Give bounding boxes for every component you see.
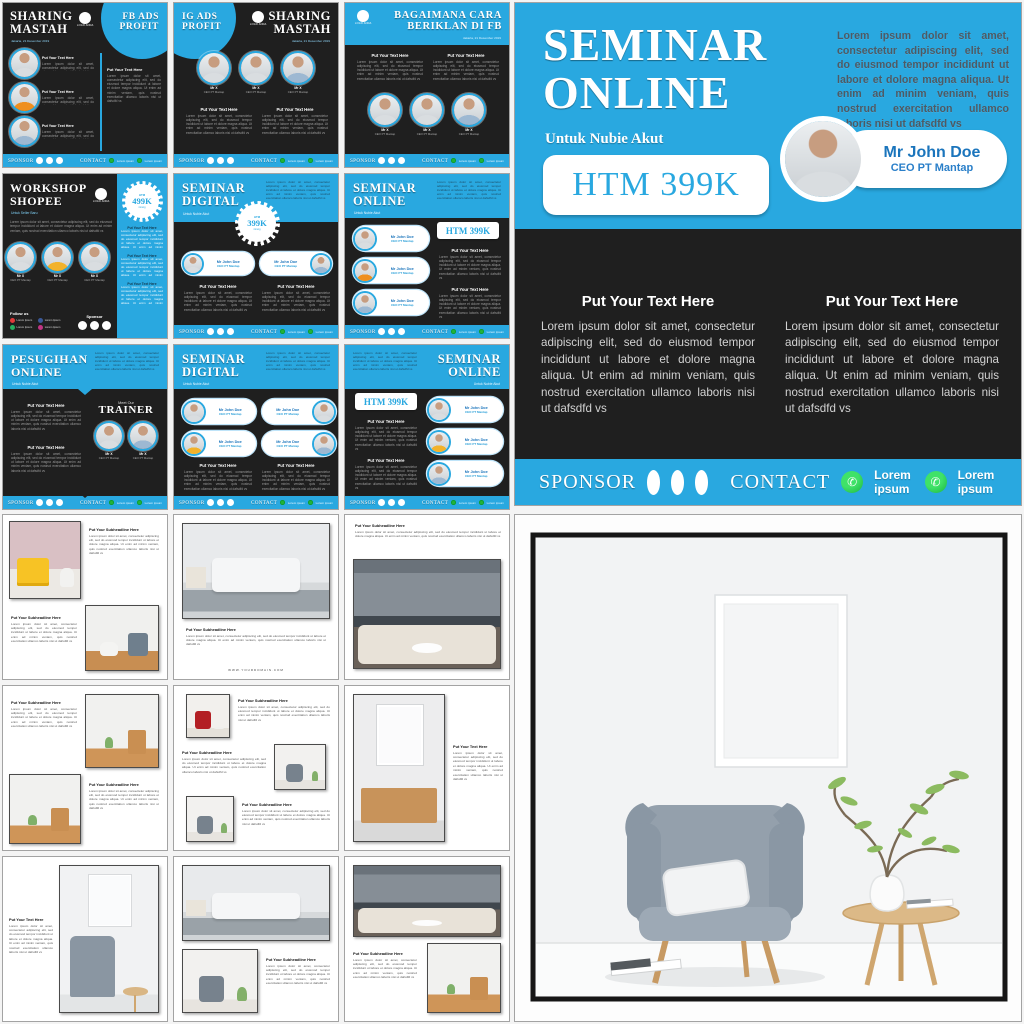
lorem-paragraph: Lorem ipsum dolor sit amet, consectetur … xyxy=(439,255,501,281)
speaker-role: CEO PT Mantap xyxy=(96,456,122,460)
text-heading: Put Your Text Here xyxy=(186,107,252,112)
speaker-pill: Mr John Doe CEO PT Mantap xyxy=(353,290,429,315)
speaker: Mr X CEO PT Mantap xyxy=(412,95,442,136)
speaker-text: Mr John Doe CEO PT Mantap xyxy=(264,408,312,416)
subheadline: Put Your Subheadline Here xyxy=(186,627,326,632)
text-block: Put Your Text Here Lorem ipsum dolor sit… xyxy=(121,226,163,248)
social-handle: Lorem Ipsum xyxy=(45,326,61,329)
lorem-paragraph: Lorem ipsum dolor sit amet, consectetur … xyxy=(184,470,252,496)
speaker-avatar xyxy=(785,121,861,197)
speaker-row: Mr X CEO PT Mantap Mr X CEO PT Mantap Mr… xyxy=(174,53,338,94)
subheadline: Put Your Subheadline Here xyxy=(238,698,330,703)
speaker-role: CEO PT Mantap xyxy=(44,278,71,282)
lorem-paragraph: Lorem ipsum dolor sit amet, consectetur … xyxy=(785,319,999,418)
text-block: Put Your Text Here Lorem ipsum dolor sit… xyxy=(9,917,53,968)
brochure-thumb-1: Put Your Subheadline Here Lorem ipsum do… xyxy=(2,514,168,680)
lorem-paragraph: Lorem ipsum dolor sit amet, consectetur … xyxy=(121,258,163,276)
contact-label: CONTACT xyxy=(80,158,106,164)
speaker-pill: Mr John Doe CEO PT Mantap xyxy=(182,252,254,275)
speaker: Mr X CEO PT Mantap xyxy=(199,53,229,94)
date-text: Jakarta, 21 Desember 2019 xyxy=(11,39,49,43)
social-handle: Lorem Ipsum xyxy=(17,326,33,329)
lorem-paragraph: Lorem ipsum dolor sit amet, consectetur … xyxy=(186,634,326,656)
flyer-thumb-pesugihan-online: PESUGIHAN ONLINE Untuk Nubie Akut Lorem … xyxy=(2,344,168,510)
brochure-thumb-7: Put Your Text Here Lorem ipsum dolor sit… xyxy=(2,856,168,1022)
sponsor-dot xyxy=(388,499,395,506)
text-block: Put Your Text Here Lorem ipsum dolor sit… xyxy=(439,287,501,320)
speaker-role: CEO PT Mantap xyxy=(81,278,108,282)
contact-text: Lorem ipsum xyxy=(288,330,305,334)
logo-caption: LOGO ANDA xyxy=(77,24,94,27)
contact-text: Lorem ipsum xyxy=(316,501,333,505)
contact-label: CONTACT xyxy=(730,471,830,494)
sponsor-contact-bar: SPONSOR CONTACT Lorem ipsum Lorem ipsum xyxy=(174,496,338,509)
sponsor-label: SPONSOR xyxy=(179,158,204,164)
price-value: 399K xyxy=(247,219,267,228)
sidebar-text-blocks: Put Your Text Here Lorem ipsum dolor sit… xyxy=(121,226,163,304)
photo-gray-chair xyxy=(182,949,258,1013)
speaker-text: Put Your Text Here Lorem ipsum dolor sit… xyxy=(42,124,94,139)
sponsor-dot xyxy=(671,470,684,495)
brochure-thumb-8: Put Your Subheadline Here Lorem ipsum do… xyxy=(173,856,339,1022)
text-heading: Put Your Text Here xyxy=(541,293,755,310)
flyer-title: BAGAIMANA CARA BERIKLAN DI FB xyxy=(394,10,502,32)
speaker: Mr X CEO PT Mantap xyxy=(130,423,156,460)
whatsapp-icon xyxy=(479,500,484,505)
whatsapp-icon xyxy=(479,329,484,334)
speaker-role: CEO PT Mantap xyxy=(454,132,484,136)
speaker-role: CEO PT Mantap xyxy=(274,264,297,268)
subtitle: Untuk Nubie Akut xyxy=(183,212,209,216)
flyer-thumb-workshop-shopee: WORKSHOP SHOPEE Untuk Seller Baru LOGO A… xyxy=(2,173,168,339)
sponsor-contact-bar: SPONSOR CONTACT ✆ Lorem ipsum ✆ Lorem ip… xyxy=(515,459,1021,505)
facebook-icon xyxy=(38,318,43,323)
sponsor-label: Sponsor xyxy=(78,314,111,319)
trainer-row: Mr X CEO PT Mantap Mr X CEO PT Mantap xyxy=(91,423,161,460)
sponsor-label: SPONSOR xyxy=(8,158,33,164)
sponsor-dot xyxy=(207,499,214,506)
lorem-paragraph: Lorem ipsum dolor sit amet, consectetur … xyxy=(238,705,330,727)
sponsor-dot xyxy=(46,499,53,506)
text-block: Put Your Subheadline Here Lorem ipsum do… xyxy=(186,627,326,656)
logo-caption: LOGO ANDA xyxy=(250,23,267,26)
trainer-title: TRAINER xyxy=(91,405,161,417)
photo-dark-livingroom xyxy=(353,865,501,937)
lorem-paragraph: Lorem ipsum dolor sit amet, consectetur … xyxy=(266,181,330,203)
sponsor-label: SPONSOR xyxy=(8,500,33,506)
title-line: MASTAH xyxy=(10,23,73,36)
whatsapp-icon xyxy=(451,500,456,505)
speaker-avatar xyxy=(355,229,375,249)
flyer-thumb-seminar-online-2: Lorem ipsum dolor sit amet, consectetur … xyxy=(344,344,510,510)
title-line: WORKSHOP xyxy=(10,182,87,195)
lorem-paragraph: Lorem ipsum dolor sit amet, consectetur … xyxy=(11,707,77,755)
price-value: 499K xyxy=(132,197,152,206)
speaker-avatar xyxy=(130,423,156,449)
text-block: Put Your Subheadline Here Lorem ipsum do… xyxy=(11,700,77,755)
corner-badge-label: IG ADS PROFIT xyxy=(182,12,222,32)
sponsor-dots xyxy=(78,321,111,330)
template-collage: SHARING MASTAH Jakarta, 21 Desember 2019… xyxy=(0,0,1024,1024)
speaker-avatar xyxy=(11,118,38,145)
lorem-paragraph: Lorem ipsum dolor sit amet, consectetur … xyxy=(266,964,330,1008)
text-block: Put Your Text Here Lorem ipsum dolor sit… xyxy=(357,53,423,92)
text-block: Put Your Subheadline Here Lorem ipsum do… xyxy=(11,615,77,670)
speaker-pill: Mr John Doe CEO PT Mantap xyxy=(427,429,503,454)
brochure-thumb-5: Put Your Subheadline Here Lorem ipsum do… xyxy=(173,685,339,851)
sponsor-dot xyxy=(217,157,224,164)
speaker-pill: Mr John Doe CEO PT Mantap xyxy=(260,252,332,275)
speaker-name: Mr John Doe xyxy=(884,144,981,162)
text-heading: Put Your Text Here xyxy=(355,419,417,424)
speaker-pill: Mr John Doe CEO PT Mantap xyxy=(427,397,503,422)
side-text-block: Put Your Text Here Lorem ipsum dolor sit… xyxy=(107,67,161,126)
photo-wooden-chair xyxy=(85,694,159,768)
text-block: Put Your Text Here Lorem ipsum dolor sit… xyxy=(184,284,252,321)
contact-text: Lorem ipsum xyxy=(117,501,134,505)
speaker: Mr X CEO PT Mantap xyxy=(454,95,484,136)
contact-text: Lorem ipsum xyxy=(487,501,504,505)
text-block: Put Your Text Here Lorem ipsum dolor sit… xyxy=(186,107,252,150)
contact-label: CONTACT xyxy=(422,500,448,506)
lorem-paragraph: Lorem ipsum dolor sit amet, consectetur … xyxy=(266,352,330,374)
text-section-right: Put Your Text Here Lorem ipsum dolor sit… xyxy=(785,293,999,418)
sponsor-contact-bar: SPONSOR CONTACT Lorem ipsum Lorem ipsum xyxy=(345,496,509,509)
lorem-paragraph: Lorem ipsum dolor sit amet, consectetur … xyxy=(95,352,159,374)
text-heading: Put Your Text Here xyxy=(439,287,501,292)
whatsapp-icon xyxy=(280,158,285,163)
text-block: Put Your Text Here Lorem ipsum dolor sit… xyxy=(184,463,252,496)
flyer-title: SHARING MASTAH xyxy=(10,10,73,37)
speaker-role: CEO PT Mantap xyxy=(241,90,271,94)
lorem-paragraph: Lorem ipsum dolor sit amet, consectetur … xyxy=(11,410,81,440)
sponsor-label: SPONSOR xyxy=(179,500,204,506)
speaker-pill: Mr John Doe CEO PT Mantap xyxy=(353,226,429,251)
sponsor-contact-bar: SPONSOR CONTACT Lorem ipsum Lorem ipsum xyxy=(3,154,167,167)
logo-circle xyxy=(357,10,369,22)
social-row: Lorem Ipsum xyxy=(38,325,60,330)
contact-label: CONTACT xyxy=(422,158,448,164)
text-heading: Put Your Text Here xyxy=(184,463,252,468)
speaker-avatar xyxy=(184,255,202,273)
title-line: ONLINE xyxy=(438,366,501,379)
photo-desk-frame xyxy=(353,694,445,842)
follow-us-label: Follow us xyxy=(10,311,60,316)
contact-text: Lorem ipsum xyxy=(487,330,504,334)
flyer-title: WORKSHOP SHOPEE xyxy=(10,182,87,207)
sponsor-contact-bar: SPONSOR CONTACT Lorem ipsum Lorem ipsum xyxy=(174,154,338,167)
sponsor-dot xyxy=(90,321,99,330)
speaker-avatar xyxy=(199,53,229,83)
sponsor-dot xyxy=(388,328,395,335)
whatsapp-icon xyxy=(10,325,15,330)
speaker-text: Mr John Doe CEO PT Mantap xyxy=(262,260,310,268)
contact-text: Lorem ipsum xyxy=(145,501,162,505)
speaker-role: CEO PT Mantap xyxy=(891,162,974,174)
sponsor-dot xyxy=(217,499,224,506)
flyer-title: PESUGIHAN ONLINE xyxy=(11,353,88,378)
speaker-pill: Mr John Doe CEO PT Mantap xyxy=(182,431,256,456)
price-box: HTM 399K xyxy=(355,393,417,410)
text-heading: Put Your Text Here xyxy=(107,67,161,72)
lorem-paragraph: Lorem ipsum dolor sit amet, consectetur … xyxy=(186,114,252,150)
photo-gray-chair xyxy=(274,744,326,790)
photo-side-table xyxy=(123,987,148,996)
speaker-avatar xyxy=(314,434,334,454)
website-url: WWW.YOURDOMAIN.COM xyxy=(174,668,338,672)
lorem-paragraph: Lorem ipsum dolor sit amet, consectetur … xyxy=(121,230,163,248)
flyer-thumb-beriklan-fb: LOGO ANDA BAGAIMANA CARA BERIKLAN DI FB … xyxy=(344,2,510,168)
text-section-left: Put Your Text Here Lorem ipsum dolor sit… xyxy=(541,293,755,418)
subtitle: Untuk Nubie Akut xyxy=(474,382,500,386)
text-block: Put Your Subheadline Here Lorem ipsum do… xyxy=(182,750,266,783)
subtitle: Untuk Nubie Akut xyxy=(545,131,663,148)
flyer-title: SEMINAR ONLINE xyxy=(543,21,767,118)
lorem-paragraph: Lorem ipsum dolor sit amet, consectetur … xyxy=(453,751,503,795)
speaker-pill: Mr John Doe CEO PT Mantap xyxy=(182,399,256,424)
sponsor-dot xyxy=(378,157,385,164)
speaker-role: CEO PT Mantap xyxy=(283,90,313,94)
subheadline: Put Your Subheadline Here xyxy=(242,802,330,807)
speaker-avatar xyxy=(184,434,204,454)
speaker-role: CEO PT Mantap xyxy=(412,132,442,136)
title-line: SEMINAR xyxy=(543,21,767,69)
logo-placeholder: LOGO ANDA xyxy=(355,10,372,25)
photo-gray-chair xyxy=(186,796,234,842)
subheadline: Put Your Subheadline Here xyxy=(11,615,77,620)
sponsor-dot xyxy=(378,328,385,335)
whatsapp-icon xyxy=(109,500,114,505)
speaker-avatar xyxy=(370,95,400,125)
subheadline: Put Your Text Here xyxy=(9,917,53,922)
speaker-role: CEO PT Mantap xyxy=(370,132,400,136)
flyer-title: SHARING MASTAH xyxy=(268,10,331,37)
contact-text: Lorem ipsum xyxy=(459,330,476,334)
trainer-block: Meet Our TRAINER Mr X CEO PT Mantap Mr X… xyxy=(91,401,161,460)
text-heading: Put Your Text Here xyxy=(355,458,417,463)
contact-text: Lorem ipsum xyxy=(316,330,333,334)
speaker-text: Mr John Doe CEO PT Mantap xyxy=(378,267,428,275)
text-block: Put Your Text Here Lorem ipsum dolor sit… xyxy=(355,458,417,491)
speaker-pill: Mr John Doe CEO PT Mantap xyxy=(262,431,336,456)
text-block: Put Your Text Here Lorem ipsum dolor sit… xyxy=(11,445,81,482)
title-line: SEMINAR xyxy=(438,353,501,366)
text-heading: Put Your Text Here xyxy=(11,445,81,450)
photo-red-armchair xyxy=(186,694,230,738)
text-heading: Put Your Text Here xyxy=(262,107,328,112)
lorem-paragraph: Lorem ipsum dolor sit amet, consectetur … xyxy=(121,286,163,304)
social-col: Lorem Ipsum Lorem Ipsum xyxy=(10,318,32,330)
speaker-role: CEO PT Mantap xyxy=(276,412,299,416)
lorem-paragraph: Lorem ipsum dolor sit amet, consectetur … xyxy=(182,757,266,783)
title-line: MASTAH xyxy=(268,23,331,36)
title-line: BERIKLAN DI FB xyxy=(394,21,502,32)
sponsor-label: SPONSOR xyxy=(350,158,375,164)
sponsor-dot xyxy=(378,499,385,506)
flyer-thumb-seminar-digital-4: SEMINAR DIGITAL Untuk Nubie Akut Lorem i… xyxy=(173,344,339,510)
sponsor-dot xyxy=(56,499,63,506)
subtitle: Untuk Nubie Akut xyxy=(183,382,209,386)
text-block: Put Your Subheadline Here Lorem ipsum do… xyxy=(242,802,330,835)
subtitle: Untuk Nubie Akut xyxy=(354,211,380,215)
photo-armchair-frame xyxy=(59,865,159,1013)
speaker-avatar xyxy=(355,293,375,313)
text-heading: Put Your Text Here xyxy=(357,53,423,58)
contact-text: Lorem ipsum xyxy=(487,159,504,163)
lorem-paragraph: Lorem ipsum dolor sit amet, consectetur … xyxy=(242,809,330,835)
speaker-avatar xyxy=(429,432,449,452)
text-block: Put Your Subheadline Here Lorem ipsum do… xyxy=(89,527,159,578)
speaker-role: CEO PT Mantap xyxy=(391,303,414,307)
speaker-avatar xyxy=(241,53,271,83)
subtitle: Untuk Seller Baru xyxy=(11,211,38,215)
social-row: Lorem Ipsum xyxy=(38,318,60,323)
speaker-text: Mr John Doe CEO PT Mantap xyxy=(378,235,428,243)
subheadline: Put Your Text Here xyxy=(453,744,503,749)
speaker: Mr X CEO PT Mantap xyxy=(81,244,108,282)
lorem-paragraph: Lorem ipsum dolor sit amet, consectetur … xyxy=(42,62,94,71)
speaker-text: Put Your Text Here Lorem ipsum dolor sit… xyxy=(42,56,94,71)
speaker-role: CEO PT Mantap xyxy=(465,410,488,414)
contact-text: Lorem ipsum xyxy=(145,159,162,163)
flyer-thumb-seminar-digital-2: SEMINAR DIGITAL Untuk Nubie Akut Lorem i… xyxy=(173,173,339,339)
lorem-paragraph: Lorem ipsum dolor sit amet, consectetur … xyxy=(11,452,81,482)
whatsapp-icon xyxy=(109,158,114,163)
contact-text: Lorem ipsum xyxy=(958,468,997,496)
header-notch xyxy=(78,389,92,395)
text-block: Put Your Text Here Lorem ipsum dolor sit… xyxy=(439,248,501,281)
whatsapp-icon: ✆ xyxy=(925,471,947,493)
subheadline: Put Your Subheadline Here xyxy=(89,782,159,787)
title-line: DIGITAL xyxy=(182,195,245,208)
speaker-row: Put Your Text Here Lorem ipsum dolor sit… xyxy=(11,84,94,111)
speaker-role: CEO PT Mantap xyxy=(465,474,488,478)
title-line: ONLINE xyxy=(543,69,767,117)
contact-text: Lorem ipsum xyxy=(459,501,476,505)
sponsor-dot xyxy=(398,157,405,164)
social-row: Lorem Ipsum xyxy=(10,318,32,323)
speaker-text: Mr John Doe CEO PT Mantap xyxy=(378,299,428,307)
sponsor-dot xyxy=(207,157,214,164)
text-heading: Put Your Text Here xyxy=(11,403,81,408)
sponsor-label: SPONSOR xyxy=(539,471,636,494)
big-photo-armchair-mockup xyxy=(514,514,1022,1022)
speaker-text: Mr John Doe CEO PT Mantap xyxy=(452,470,502,478)
sponsor-block: Sponsor xyxy=(78,314,111,330)
lorem-paragraph: Lorem ipsum dolor sit amet, consectetur … xyxy=(355,530,501,550)
speaker-avatar xyxy=(355,261,375,281)
subheadline: Put Your Subheadline Here xyxy=(182,750,266,755)
footer-notch xyxy=(78,492,92,498)
whatsapp-icon xyxy=(451,329,456,334)
speaker-avatar xyxy=(7,244,34,271)
speaker-avatar xyxy=(412,95,442,125)
lorem-paragraph: Lorem ipsum dolor sit amet, consectetur … xyxy=(89,534,159,578)
speaker: Mr X CEO PT Mantap xyxy=(241,53,271,94)
speaker: Mr X CEO PT Mantap xyxy=(7,244,34,282)
sponsor-dot xyxy=(695,470,708,495)
speaker-avatar xyxy=(11,84,38,111)
text-block: Put Your Text Here Lorem ipsum dolor sit… xyxy=(121,282,163,304)
speaker-role: CEO PT Mantap xyxy=(130,456,156,460)
speaker-card: Mr John Doe CEO PT Mantap xyxy=(785,121,1007,197)
whatsapp-icon xyxy=(308,329,313,334)
sponsor-dot xyxy=(207,328,214,335)
speaker-role: CEO PT Mantap xyxy=(7,278,34,282)
speaker-role: CEO PT Mantap xyxy=(391,271,414,275)
contact-label: CONTACT xyxy=(251,329,277,335)
photo-dark-livingroom xyxy=(353,559,501,669)
text-block: Put Your Subheadline Here Lorem ipsum do… xyxy=(89,782,159,837)
social-col: Lorem Ipsum Lorem Ipsum xyxy=(38,318,60,330)
lorem-paragraph: Lorem ipsum dolor sit amet, consectetur … xyxy=(89,789,159,837)
title-line: SHARING xyxy=(268,10,331,23)
lorem-paragraph: Lorem ipsum dolor sit amet, consectetur … xyxy=(433,60,499,92)
speaker-role: CEO PT Mantap xyxy=(276,444,299,448)
speaker-text: Mr John Doe CEO PT Mantap xyxy=(207,440,255,448)
sponsor-dot xyxy=(217,328,224,335)
title-line: ONLINE xyxy=(11,366,88,379)
subheadline: Put Your Subheadline Here xyxy=(11,700,77,705)
title-line: SEMINAR xyxy=(182,353,245,366)
badge-line: FB ADS xyxy=(120,12,160,22)
subheadline: Put Your Subheadline Here xyxy=(89,527,159,532)
brochure-thumb-2: Put Your Subheadline Here Lorem ipsum do… xyxy=(173,514,339,680)
brochure-thumb-3: Put Your Subheadline Here Lorem ipsum do… xyxy=(344,514,510,680)
speaker-text: Mr John Doe CEO PT Mantap xyxy=(264,440,312,448)
speaker-avatar xyxy=(184,402,204,422)
contact-text: Lorem ipsum xyxy=(117,159,134,163)
sponsor-dot xyxy=(227,499,234,506)
logo-placeholder: LOGO ANDA xyxy=(250,11,267,26)
big-flyer-seminar-online: SEMINAR ONLINE Untuk Nubie Akut Lorem ip… xyxy=(514,2,1022,506)
subheadline: Put Your Subheadline Here xyxy=(353,951,417,956)
sponsor-dot xyxy=(102,321,111,330)
text-block: Put Your Subheadline Here Lorem ipsum do… xyxy=(355,523,501,550)
speaker-pill: Mr John Doe CEO PT Mantap xyxy=(353,258,429,283)
text-block: Put Your Text Here Lorem ipsum dolor sit… xyxy=(262,284,330,321)
text-block: Put Your Text Here Lorem ipsum dolor sit… xyxy=(453,744,503,795)
speaker-role: CEO PT Mantap xyxy=(219,412,242,416)
flyer-title: SEMINAR DIGITAL xyxy=(182,353,245,380)
speaker-role: CEO PT Mantap xyxy=(391,239,414,243)
logo-placeholder: LOGO ANDA xyxy=(77,12,94,27)
contact-text: Lorem ipsum xyxy=(288,501,305,505)
youtube-icon xyxy=(10,318,15,323)
text-block: Put Your Text Here Lorem ipsum dolor sit… xyxy=(11,403,81,440)
contact-text: Lorem ipsum xyxy=(288,159,305,163)
logo-placeholder: LOGO ANDA xyxy=(93,188,110,203)
flyer-title: SEMINAR ONLINE xyxy=(353,182,416,209)
speaker-text: Mr John Doe CEO PT Mantap xyxy=(452,438,502,446)
sponsor-contact-bar: SPONSOR CONTACT Lorem ipsum Lorem ipsum xyxy=(174,325,338,338)
contact-label: CONTACT xyxy=(80,500,106,506)
social-handle: Lorem Ipsum xyxy=(17,319,33,322)
contact-text: Lorem ipsum xyxy=(459,159,476,163)
lorem-paragraph: Lorem ipsum dolor sit amet, consectetur … xyxy=(353,958,417,1008)
logo-circle xyxy=(79,12,91,24)
whatsapp-icon xyxy=(280,500,285,505)
speaker-role: CEO PT Mantap xyxy=(199,90,229,94)
title-line: BAGAIMANA CARA xyxy=(394,10,502,21)
sponsor-dot xyxy=(398,499,405,506)
sponsor-dot xyxy=(388,157,395,164)
subtitle: Untuk Nubie Akut xyxy=(12,382,38,386)
text-block: Put Your Text Here Lorem ipsum dolor sit… xyxy=(262,107,328,150)
badge-line: IG ADS xyxy=(182,12,222,22)
speaker-row: Mr X CEO PT Mantap Mr X CEO PT Mantap Mr… xyxy=(345,95,509,136)
speaker-avatar xyxy=(96,423,122,449)
